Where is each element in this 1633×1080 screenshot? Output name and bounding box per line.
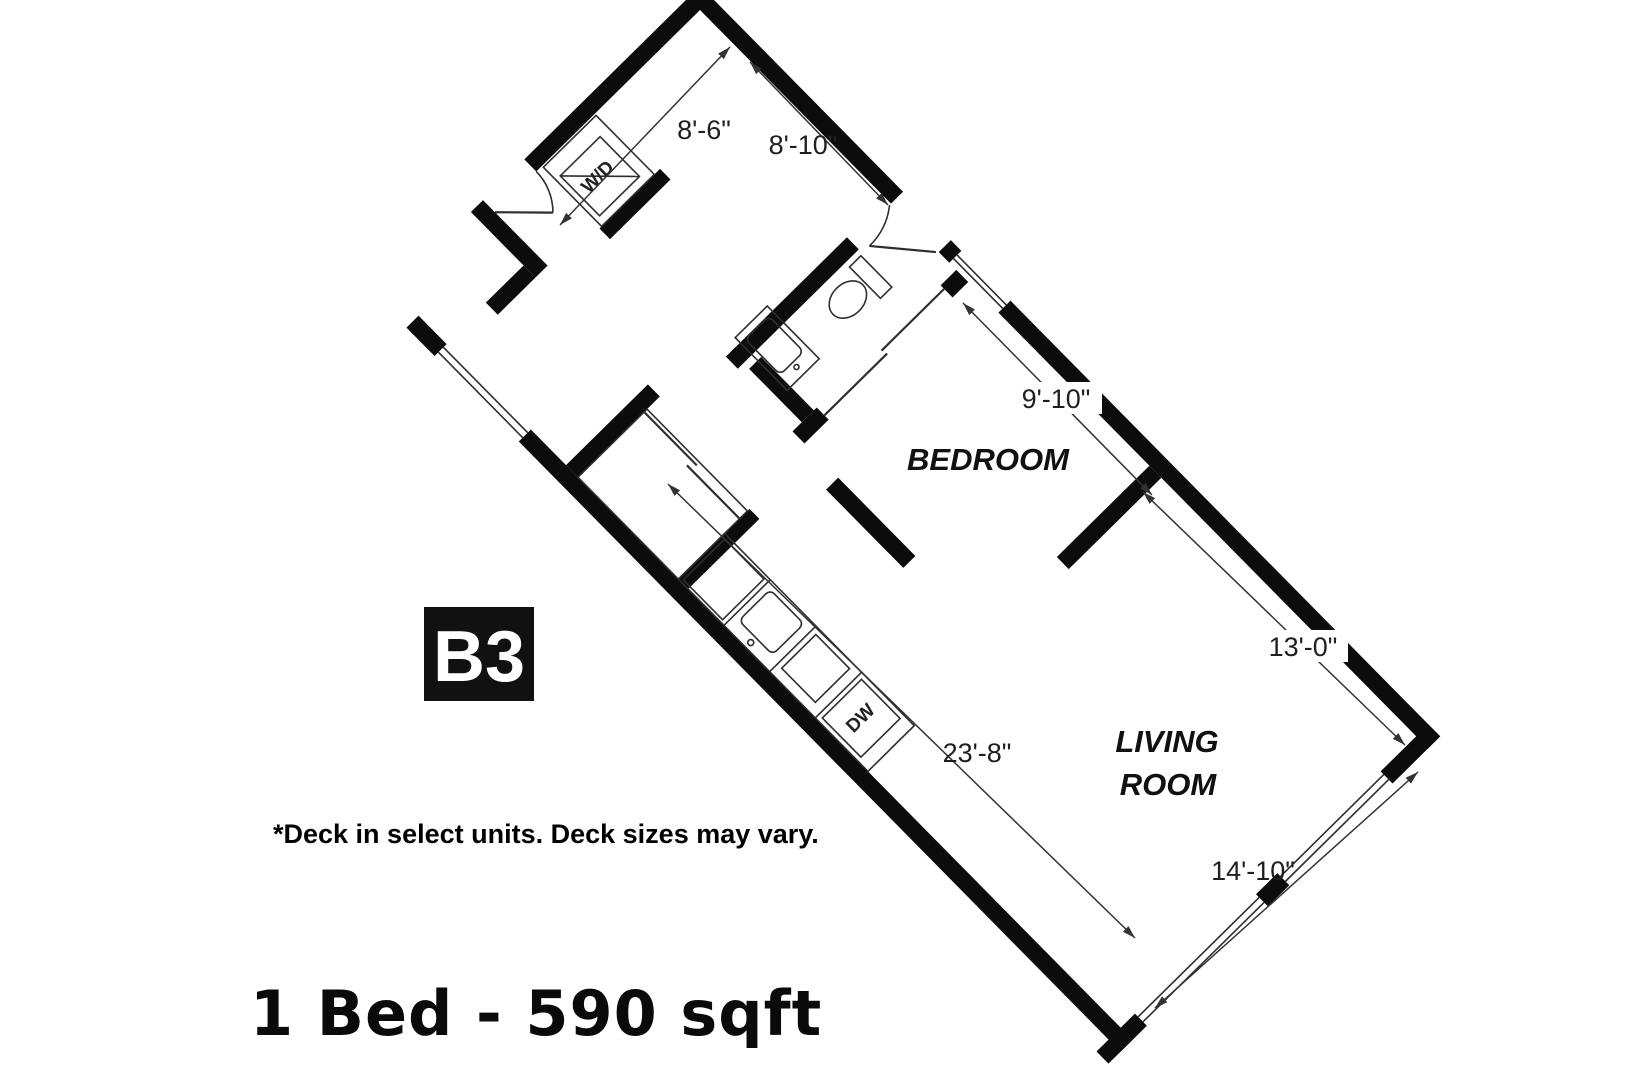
kitchen-counter: DW [678,533,914,771]
closet-wall-right [678,509,759,589]
washer-dryer-label: W/D [578,157,619,198]
dim-living-width: 14'-10" [1211,856,1295,886]
bedroom-label: BEDROOM [907,442,1070,477]
bedroom-hall-wall [826,478,915,568]
unit-badge: B3 [424,607,534,701]
dim-line-living-length [1143,492,1405,745]
living-room-label-2: ROOM [1120,767,1218,802]
dim-entry-width: 8'-6" [677,115,731,145]
floor-plan-walls: W/D DW [368,0,1440,1064]
bath-wall [749,357,814,422]
bedroom-sliding-door [820,289,948,415]
dim-kitchen-hall: 23'-8" [943,738,1012,768]
dim-line-living-width [1155,772,1418,1008]
dim-living-length: 13'-0" [1269,632,1338,662]
floor-plan-page: W/D DW [0,0,1633,1080]
stove [782,634,850,702]
floor-plan-canvas: W/D DW [0,0,1633,1080]
side-window [438,347,527,437]
dim-bedroom-length: 9'-10" [1022,384,1091,414]
dishwasher-label: DW [842,700,879,737]
unit-badge-label: B3 [433,617,525,697]
dimension-labels: 8'-6" 8'-10" 9'-10" 13'-0" 23'-8" 14'-10… [677,115,1348,886]
front-door [859,205,936,282]
bedroom-living-divider [1057,466,1162,569]
dim-entry-length: 8'-10" [769,130,838,160]
living-room-label-1: LIVING [1115,724,1218,759]
floor-plan-title: 1 Bed - 590 sqft [250,977,822,1050]
deck-footnote: *Deck in select units. Deck sizes may va… [273,819,819,849]
closet-wall-left [566,384,660,477]
bedroom-wall-stub-top [941,270,969,298]
